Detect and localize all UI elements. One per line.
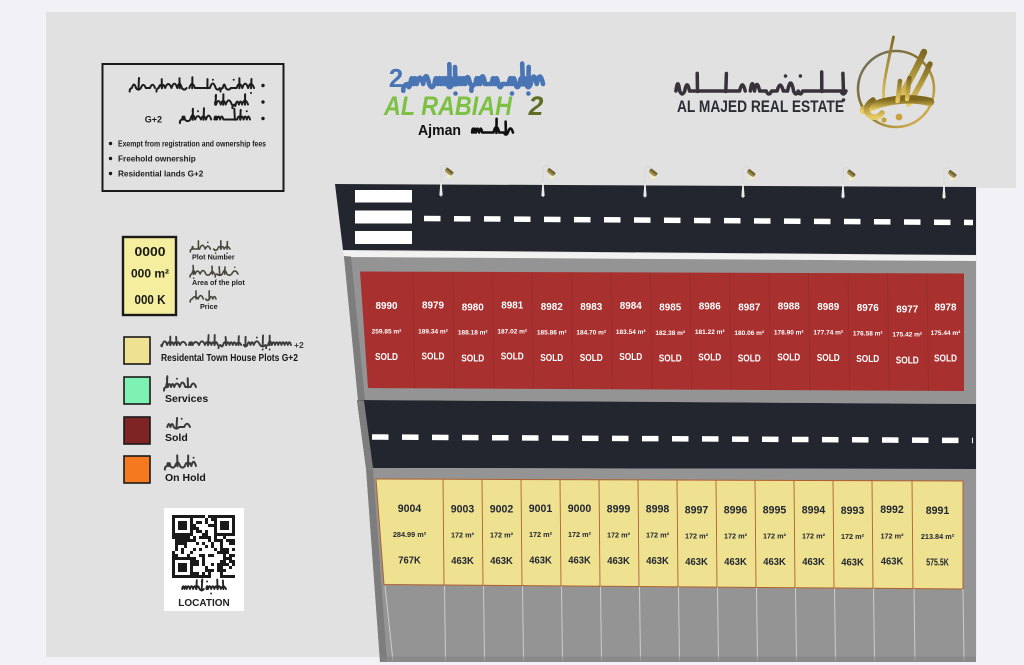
svg-text:8998: 8998 bbox=[646, 504, 670, 516]
svg-text:172 m²: 172 m² bbox=[802, 532, 826, 541]
svg-text:8981: 8981 bbox=[501, 301, 523, 312]
svg-text:463K: 463K bbox=[646, 556, 669, 567]
svg-text:SOLD: SOLD bbox=[659, 354, 682, 365]
svg-text:184.70 m²: 184.70 m² bbox=[576, 329, 606, 336]
svg-text:8997: 8997 bbox=[685, 505, 709, 517]
svg-text:8988: 8988 bbox=[778, 302, 800, 313]
svg-text:SOLD: SOLD bbox=[619, 352, 642, 363]
svg-text:213.84 m²: 213.84 m² bbox=[921, 532, 955, 541]
svg-text:463K: 463K bbox=[490, 556, 513, 567]
svg-text:172 m²: 172 m² bbox=[568, 530, 592, 539]
svg-text:SOLD: SOLD bbox=[777, 353, 800, 364]
svg-text:Sold: Sold bbox=[165, 432, 188, 444]
svg-text:172 m²: 172 m² bbox=[763, 531, 787, 540]
svg-text:8977: 8977 bbox=[896, 304, 918, 315]
svg-text:SOLD: SOLD bbox=[738, 354, 761, 365]
svg-text:463K: 463K bbox=[841, 557, 864, 568]
svg-text:Residential lands G+2: Residential lands G+2 bbox=[118, 170, 204, 179]
svg-text:463K: 463K bbox=[568, 555, 591, 566]
svg-text:8993: 8993 bbox=[841, 505, 865, 517]
svg-text:172 m²: 172 m² bbox=[880, 531, 904, 540]
svg-text:9004: 9004 bbox=[398, 503, 422, 515]
svg-text:259.85 m²: 259.85 m² bbox=[372, 329, 402, 336]
svg-text:8985: 8985 bbox=[659, 303, 681, 314]
svg-text:8987: 8987 bbox=[738, 303, 760, 314]
svg-text:463K: 463K bbox=[607, 556, 630, 567]
svg-text:2: 2 bbox=[389, 63, 403, 93]
svg-text:172 m²: 172 m² bbox=[724, 531, 748, 540]
svg-text:463K: 463K bbox=[724, 557, 747, 568]
svg-text:SOLD: SOLD bbox=[501, 352, 524, 363]
svg-text:177.74 m²: 177.74 m² bbox=[813, 330, 843, 337]
svg-text:Area of the plot: Area of the plot bbox=[192, 278, 245, 287]
svg-text:Plot Number: Plot Number bbox=[192, 253, 235, 262]
svg-text:463K: 463K bbox=[881, 557, 904, 568]
svg-text:187.02 m²: 187.02 m² bbox=[497, 329, 527, 336]
svg-text:172 m²: 172 m² bbox=[451, 530, 475, 539]
svg-text:000 K: 000 K bbox=[135, 293, 166, 307]
svg-text:9003: 9003 bbox=[451, 504, 475, 516]
svg-text:Exempt from registration and o: Exempt from registration and ownership f… bbox=[118, 140, 266, 149]
svg-text:172 m²: 172 m² bbox=[490, 531, 514, 540]
svg-text:8978: 8978 bbox=[935, 302, 957, 313]
svg-text:172 m²: 172 m² bbox=[529, 530, 553, 539]
svg-text:175.42 m²: 175.42 m² bbox=[892, 331, 922, 338]
svg-text:SOLD: SOLD bbox=[375, 352, 398, 363]
svg-text:175.44 m²: 175.44 m² bbox=[931, 330, 961, 337]
svg-text:SOLD: SOLD bbox=[580, 353, 603, 364]
svg-text:8979: 8979 bbox=[422, 301, 444, 312]
svg-text:000 m²: 000 m² bbox=[131, 267, 169, 281]
svg-text:8994: 8994 bbox=[802, 505, 826, 517]
svg-text:+2: +2 bbox=[294, 340, 304, 350]
svg-text:SOLD: SOLD bbox=[422, 352, 445, 363]
svg-text:8991: 8991 bbox=[926, 505, 950, 517]
svg-text:463K: 463K bbox=[763, 557, 786, 568]
svg-text:8976: 8976 bbox=[857, 303, 879, 314]
svg-text:SOLD: SOLD bbox=[540, 353, 563, 364]
svg-text:SOLD: SOLD bbox=[896, 355, 919, 366]
svg-text:8999: 8999 bbox=[607, 504, 631, 516]
svg-text:SOLD: SOLD bbox=[856, 354, 879, 365]
svg-text:0000: 0000 bbox=[135, 244, 166, 259]
svg-text:180.06 m²: 180.06 m² bbox=[734, 330, 764, 337]
svg-text:176.58 m²: 176.58 m² bbox=[853, 331, 883, 338]
svg-text:8982: 8982 bbox=[541, 302, 563, 313]
svg-text:8992: 8992 bbox=[880, 504, 904, 516]
svg-text:8980: 8980 bbox=[462, 302, 484, 313]
svg-text:Services: Services bbox=[165, 393, 208, 405]
svg-text:8984: 8984 bbox=[620, 301, 642, 312]
svg-text:8983: 8983 bbox=[580, 302, 602, 313]
svg-text:178.90 m²: 178.90 m² bbox=[774, 330, 804, 337]
svg-text:2: 2 bbox=[528, 91, 544, 121]
svg-text:575.5K: 575.5K bbox=[926, 557, 949, 568]
svg-text:SOLD: SOLD bbox=[934, 353, 957, 364]
svg-text:8986: 8986 bbox=[699, 301, 721, 312]
svg-text:189.34 m²: 189.34 m² bbox=[418, 329, 448, 336]
svg-text:Price: Price bbox=[200, 302, 218, 311]
svg-text:9002: 9002 bbox=[490, 504, 514, 516]
svg-text:463K: 463K bbox=[451, 556, 474, 567]
svg-text:Residental Town House Plots G+: Residental Town House Plots G+2 bbox=[161, 353, 298, 364]
svg-text:AL MAJED REAL ESTATE: AL MAJED REAL ESTATE bbox=[677, 97, 844, 116]
svg-text:172 m²: 172 m² bbox=[685, 531, 709, 540]
svg-text:SOLD: SOLD bbox=[817, 353, 840, 364]
svg-text:463K: 463K bbox=[685, 557, 708, 568]
svg-text:On Hold: On Hold bbox=[165, 472, 206, 484]
svg-text:284.99 m²: 284.99 m² bbox=[393, 530, 427, 539]
svg-text:188.18 m²: 188.18 m² bbox=[458, 330, 488, 337]
svg-text:182.38 m²: 182.38 m² bbox=[655, 330, 685, 337]
svg-text:463K: 463K bbox=[802, 557, 825, 568]
svg-text:SOLD: SOLD bbox=[698, 352, 721, 363]
svg-text:463K: 463K bbox=[529, 555, 552, 566]
svg-text:185.86 m²: 185.86 m² bbox=[537, 330, 567, 337]
svg-text:8989: 8989 bbox=[817, 302, 839, 313]
svg-text:9001: 9001 bbox=[529, 503, 553, 515]
svg-text:172 m²: 172 m² bbox=[841, 532, 865, 541]
svg-text:8990: 8990 bbox=[376, 301, 398, 312]
svg-text:8995: 8995 bbox=[763, 505, 787, 517]
svg-text:LOCATION: LOCATION bbox=[178, 598, 229, 609]
svg-text:183.54 m²: 183.54 m² bbox=[616, 329, 646, 336]
svg-text:Ajman: Ajman bbox=[418, 122, 461, 139]
svg-text:172 m²: 172 m² bbox=[607, 531, 631, 540]
svg-text:9000: 9000 bbox=[568, 503, 592, 515]
svg-text:767K: 767K bbox=[398, 556, 421, 567]
svg-text:8996: 8996 bbox=[724, 505, 748, 517]
svg-text:SOLD: SOLD bbox=[461, 353, 484, 364]
svg-text:AL RABIAH: AL RABIAH bbox=[383, 91, 513, 121]
svg-text:172 m²: 172 m² bbox=[646, 531, 670, 540]
svg-text:G+2: G+2 bbox=[145, 115, 162, 125]
svg-text:Freehold ownership: Freehold ownership bbox=[118, 155, 196, 164]
svg-text:181.22 m²: 181.22 m² bbox=[695, 329, 725, 336]
